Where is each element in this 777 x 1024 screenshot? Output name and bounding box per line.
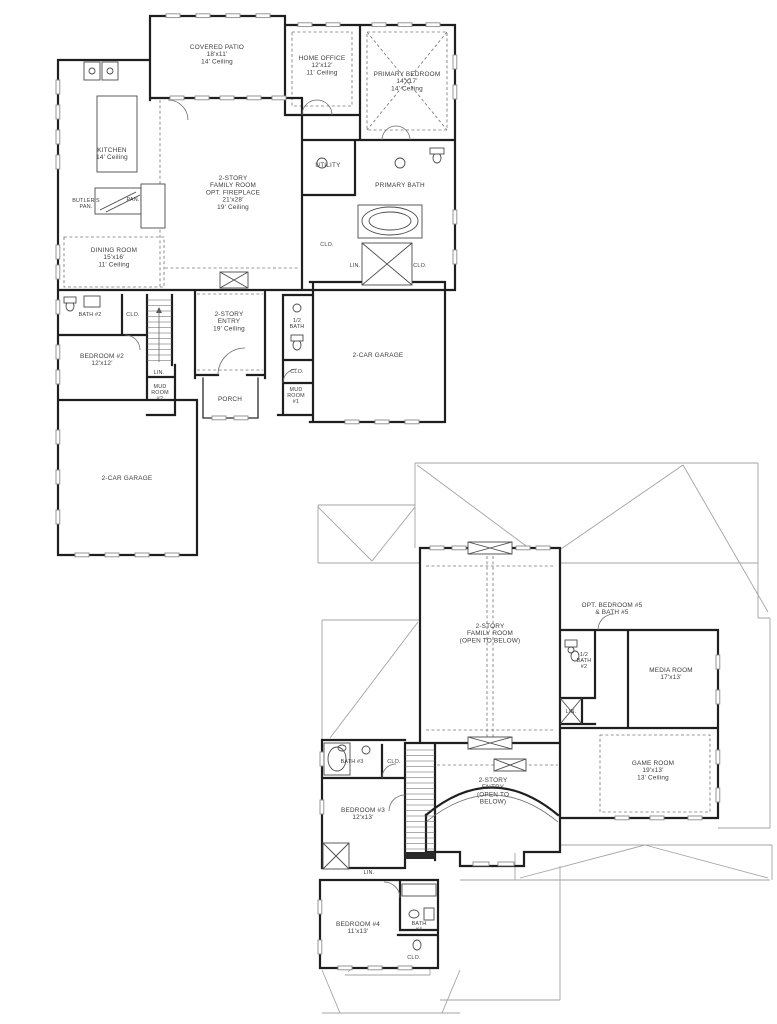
- garage-right-label: 2-CAR GARAGE: [353, 352, 404, 359]
- second-floor-plan: 2-STORYFAMILY ROOM(OPEN TO BELOW) OPT. B…: [318, 463, 772, 1013]
- garage-left-label: 2-CAR GARAGE: [102, 475, 153, 482]
- primary-linen-label: LIN.: [350, 263, 361, 269]
- entry-label: 2-STORYENTRY19' Ceiling: [213, 311, 245, 332]
- dining-room-label: DINING ROOM15'x16'11' Ceiling: [91, 247, 137, 268]
- primary-bedroom-label: PRIMARY BEDROOM14'x17'14' Ceiling: [374, 71, 441, 92]
- bath3-label: BATH #3: [341, 759, 364, 765]
- porch-label: PORCH: [218, 396, 242, 403]
- linen1-label: LIN.: [154, 370, 165, 376]
- floorplan-page: COVERED PATIO18'x11'14' Ceiling HOME OFF…: [0, 0, 777, 1024]
- bedroom2-label: BEDROOM #212'x12': [80, 353, 124, 367]
- first-floor-stairs: [147, 300, 172, 362]
- bath2-closet-label: CLO.: [126, 312, 139, 318]
- primary-closet-label: CLO.: [320, 242, 333, 248]
- primary-closet2-label: CLO.: [413, 263, 426, 269]
- home-office-label: HOME OFFICE12'x12'11' Ceiling: [299, 55, 346, 76]
- utility-label: UTILITY: [315, 162, 341, 169]
- first-floor-plan: COVERED PATIO18'x11'14' Ceiling HOME OFF…: [56, 14, 457, 557]
- family-room-label: 2-STORYFAMILY ROOMOPT. FIREPLACE21'x28'1…: [206, 175, 260, 211]
- floorplan-drawing: COVERED PATIO18'x11'14' Ceiling HOME OFF…: [0, 0, 777, 1024]
- covered-patio-label: COVERED PATIO18'x11'14' Ceiling: [190, 44, 244, 65]
- second-floor-room-masks: [320, 548, 718, 968]
- entry-open-label: 2-STORYENTRY(OPEN TOBELOW): [477, 777, 509, 806]
- opt-bedroom5-label: OPT. BEDROOM #5& BATH #5: [582, 602, 643, 616]
- bath3-closet-label: CLO.: [387, 759, 400, 765]
- bath2-label: BATH #2: [79, 312, 102, 318]
- mud-room1-label: MUDROOM#1: [287, 387, 305, 405]
- pantry-label: PAN.: [127, 197, 140, 203]
- fireplace: [220, 272, 248, 288]
- bath2-fixtures: [64, 296, 100, 311]
- half-bath-label: 1/2BATH: [290, 318, 305, 330]
- linen2-label: LIN.: [364, 870, 375, 876]
- primary-bath-label: PRIMARY BATH: [375, 182, 425, 189]
- kitchen-label: KITCHEN14' Ceiling: [96, 147, 128, 161]
- first-floor-door-arcs: [125, 100, 410, 383]
- bath4-closet-label: CLO.: [407, 955, 420, 961]
- linen-f2-label: LIN.: [566, 709, 577, 715]
- mud-closet-label: CLO.: [290, 369, 303, 375]
